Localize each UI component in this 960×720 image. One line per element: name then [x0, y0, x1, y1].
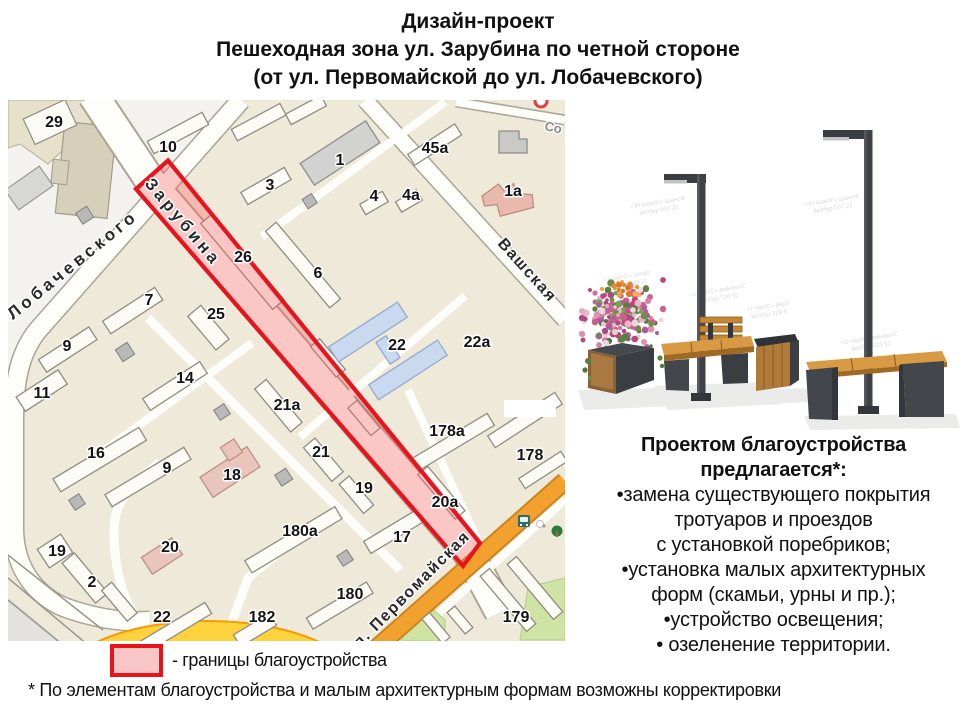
svg-text:180а: 180а: [282, 523, 318, 540]
svg-text:16: 16: [87, 445, 105, 462]
svg-text:21: 21: [312, 444, 330, 461]
svg-text:1а: 1а: [504, 183, 522, 200]
svg-text:182: 182: [249, 609, 276, 626]
svg-text:19: 19: [355, 480, 373, 497]
svg-text:21а: 21а: [274, 397, 301, 414]
svg-text:22: 22: [388, 337, 406, 354]
svg-text:20а: 20а: [432, 494, 459, 511]
svg-text:20: 20: [161, 539, 179, 556]
svg-text:25: 25: [207, 306, 225, 323]
svg-text:18: 18: [223, 467, 241, 484]
svg-text:1: 1: [336, 152, 345, 169]
svg-text:19: 19: [48, 543, 66, 560]
svg-text:22: 22: [153, 609, 171, 626]
svg-text:45а: 45а: [422, 140, 449, 157]
svg-text:7: 7: [145, 292, 154, 309]
svg-text:10: 10: [159, 139, 177, 156]
svg-text:14: 14: [176, 370, 194, 387]
svg-text:4: 4: [370, 188, 379, 205]
svg-text:178а: 178а: [429, 423, 465, 440]
svg-text:22а: 22а: [464, 334, 491, 351]
svg-text:11: 11: [34, 385, 51, 402]
svg-text:9: 9: [163, 460, 172, 477]
svg-text:29: 29: [45, 114, 63, 131]
svg-text:17: 17: [393, 529, 411, 546]
svg-text:6: 6: [314, 265, 323, 282]
svg-text:3: 3: [266, 177, 275, 194]
svg-text:180: 180: [337, 586, 364, 603]
svg-text:9: 9: [63, 338, 72, 355]
svg-text:26: 26: [234, 249, 252, 266]
svg-text:178: 178: [517, 447, 544, 464]
svg-text:4а: 4а: [402, 187, 420, 204]
svg-text:2: 2: [88, 574, 97, 591]
svg-text:179: 179: [503, 609, 530, 626]
